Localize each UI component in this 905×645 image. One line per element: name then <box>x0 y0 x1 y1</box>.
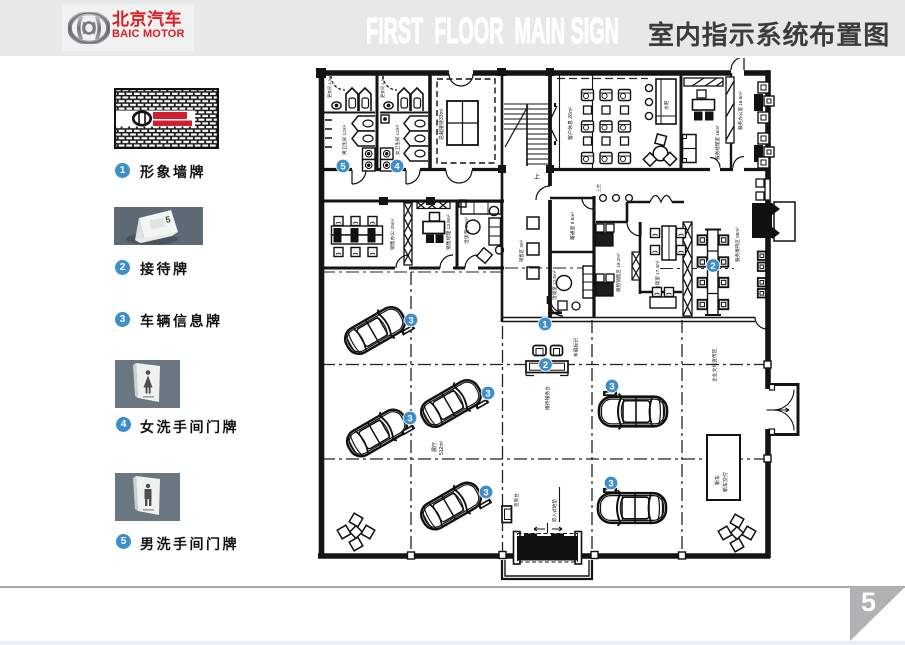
svg-text:3: 3 <box>609 382 614 393</box>
svg-text:接待服务台: 接待服务台 <box>544 386 551 410</box>
svg-text:5: 5 <box>861 587 876 617</box>
svg-text:洽谈室 12.5m²: 洽谈室 12.5m² <box>551 270 558 300</box>
svg-text:保险销售区 19.2m²: 保险销售区 19.2m² <box>615 253 622 292</box>
svg-text:销售经理 13.9m²: 销售经理 13.9m² <box>445 214 452 250</box>
svg-text:水吧: 水吧 <box>663 100 669 110</box>
svg-text:4: 4 <box>394 162 400 173</box>
svg-text:3: 3 <box>483 488 488 499</box>
svg-text:更衣间 1.3m²: 更衣间 1.3m² <box>379 74 385 98</box>
svg-text:512m²: 512m² <box>439 440 445 455</box>
svg-text:3: 3 <box>485 389 490 400</box>
svg-text:服务办公室 18.6m²: 服务办公室 18.6m² <box>737 91 744 130</box>
svg-text:3: 3 <box>408 316 413 327</box>
svg-text:3: 3 <box>407 414 412 425</box>
svg-text:上: 上 <box>534 173 540 181</box>
svg-text:展厅: 展厅 <box>432 442 438 452</box>
svg-text:更衣间 1.3m²: 更衣间 1.3m² <box>326 74 332 98</box>
svg-text:3: 3 <box>608 479 613 490</box>
svg-text:车展标识: 车展标识 <box>573 338 580 357</box>
svg-text:洽谈室 17.4m²: 洽谈室 17.4m² <box>654 260 661 290</box>
svg-text:总裁接待33m²: 总裁接待33m² <box>438 108 445 140</box>
svg-text:女卫生间 12m²: 女卫生间 12m² <box>394 124 401 155</box>
svg-text:销售办公 25m²: 销售办公 25m² <box>389 218 396 250</box>
svg-text:2: 2 <box>543 360 548 371</box>
svg-text:2: 2 <box>710 261 715 272</box>
svg-text:新车交付: 新车交付 <box>722 472 729 492</box>
svg-text:5: 5 <box>340 162 346 173</box>
svg-text:洽谈室 14m²: 洽谈室 14m² <box>463 217 470 244</box>
svg-text:客户休息 26m²: 客户休息 26m² <box>567 107 574 140</box>
svg-text:服务经理室 16m²: 服务经理室 16m² <box>714 125 721 160</box>
svg-text:暖通室 9.6m²: 暖通室 9.6m² <box>569 212 576 240</box>
svg-text:销售区 3m²: 销售区 3m² <box>518 240 525 262</box>
svg-text:上空: 上空 <box>595 184 601 192</box>
svg-text:男卫生间 12m²: 男卫生间 12m² <box>341 124 348 155</box>
svg-text:嵌入式地垫: 嵌入式地垫 <box>551 499 558 522</box>
svg-text:服务接待区 68m²: 服务接待区 68m² <box>734 227 741 262</box>
svg-text:企业文化宣传区: 企业文化宣传区 <box>711 348 718 382</box>
svg-text:新车: 新车 <box>714 475 721 485</box>
svg-text:FIRST FLOOR MAIN SIGN: FIRST FLOOR MAIN SIGN <box>366 10 619 50</box>
svg-text:1: 1 <box>542 320 548 331</box>
svg-text:签到台: 签到台 <box>513 493 520 507</box>
